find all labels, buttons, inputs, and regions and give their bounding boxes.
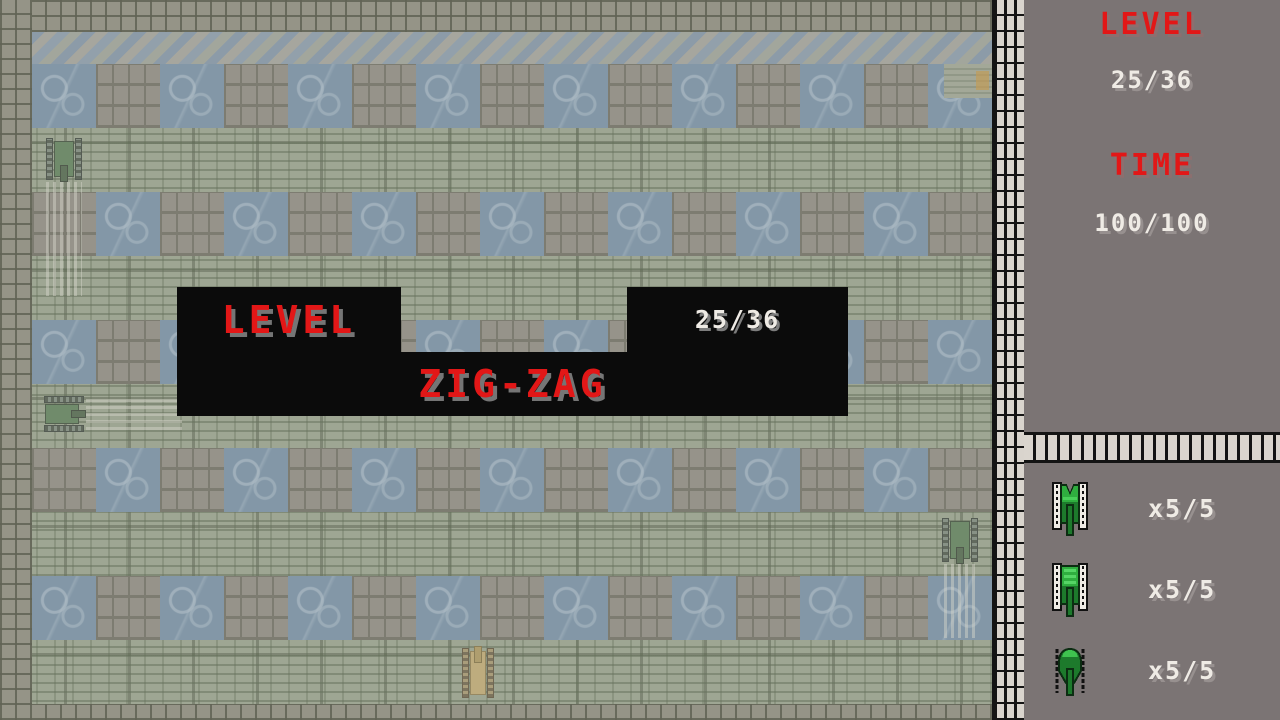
enemy-tank-dome-icon xyxy=(1050,641,1090,699)
enemy-roster-row: x5/5 xyxy=(1050,641,1216,699)
enemy-tank-striped-icon xyxy=(1050,560,1090,618)
enemy-count: x5/5 xyxy=(1148,658,1216,683)
game-screen: LEVEL 25/36 ZIG-ZAG LEVEL 25/36 TIME 100… xyxy=(0,0,1280,720)
battlefield[interactable]: LEVEL 25/36 ZIG-ZAG xyxy=(0,0,992,720)
hud-panel: LEVEL 25/36 TIME 100/100 x5/5 xyxy=(1024,0,1280,720)
enemy-count: x5/5 xyxy=(1148,577,1216,602)
hud-wall-divider xyxy=(1024,432,1280,463)
enemy-roster-row: x5/5 xyxy=(1050,479,1216,537)
hud-level-label: LEVEL xyxy=(1024,10,1280,40)
banner-level-value: 25/36 xyxy=(695,307,780,332)
banner-level-label: LEVEL xyxy=(222,301,356,339)
banner-level-name: ZIG-ZAG xyxy=(418,365,606,403)
enemy-roster-row: x5/5 xyxy=(1050,560,1216,618)
hud-time-label: TIME xyxy=(1024,151,1280,181)
banner-level-box: LEVEL xyxy=(177,287,401,352)
hud-level-value: 25/36 xyxy=(1024,68,1280,92)
enemy-tank-pointed-icon xyxy=(1050,479,1090,537)
hud-time-value: 100/100 xyxy=(1024,211,1280,235)
banner-title-box: ZIG-ZAG xyxy=(177,352,848,416)
boundary-wall xyxy=(992,0,1024,720)
enemy-count: x5/5 xyxy=(1148,496,1216,521)
banner-count-box: 25/36 xyxy=(627,287,848,352)
